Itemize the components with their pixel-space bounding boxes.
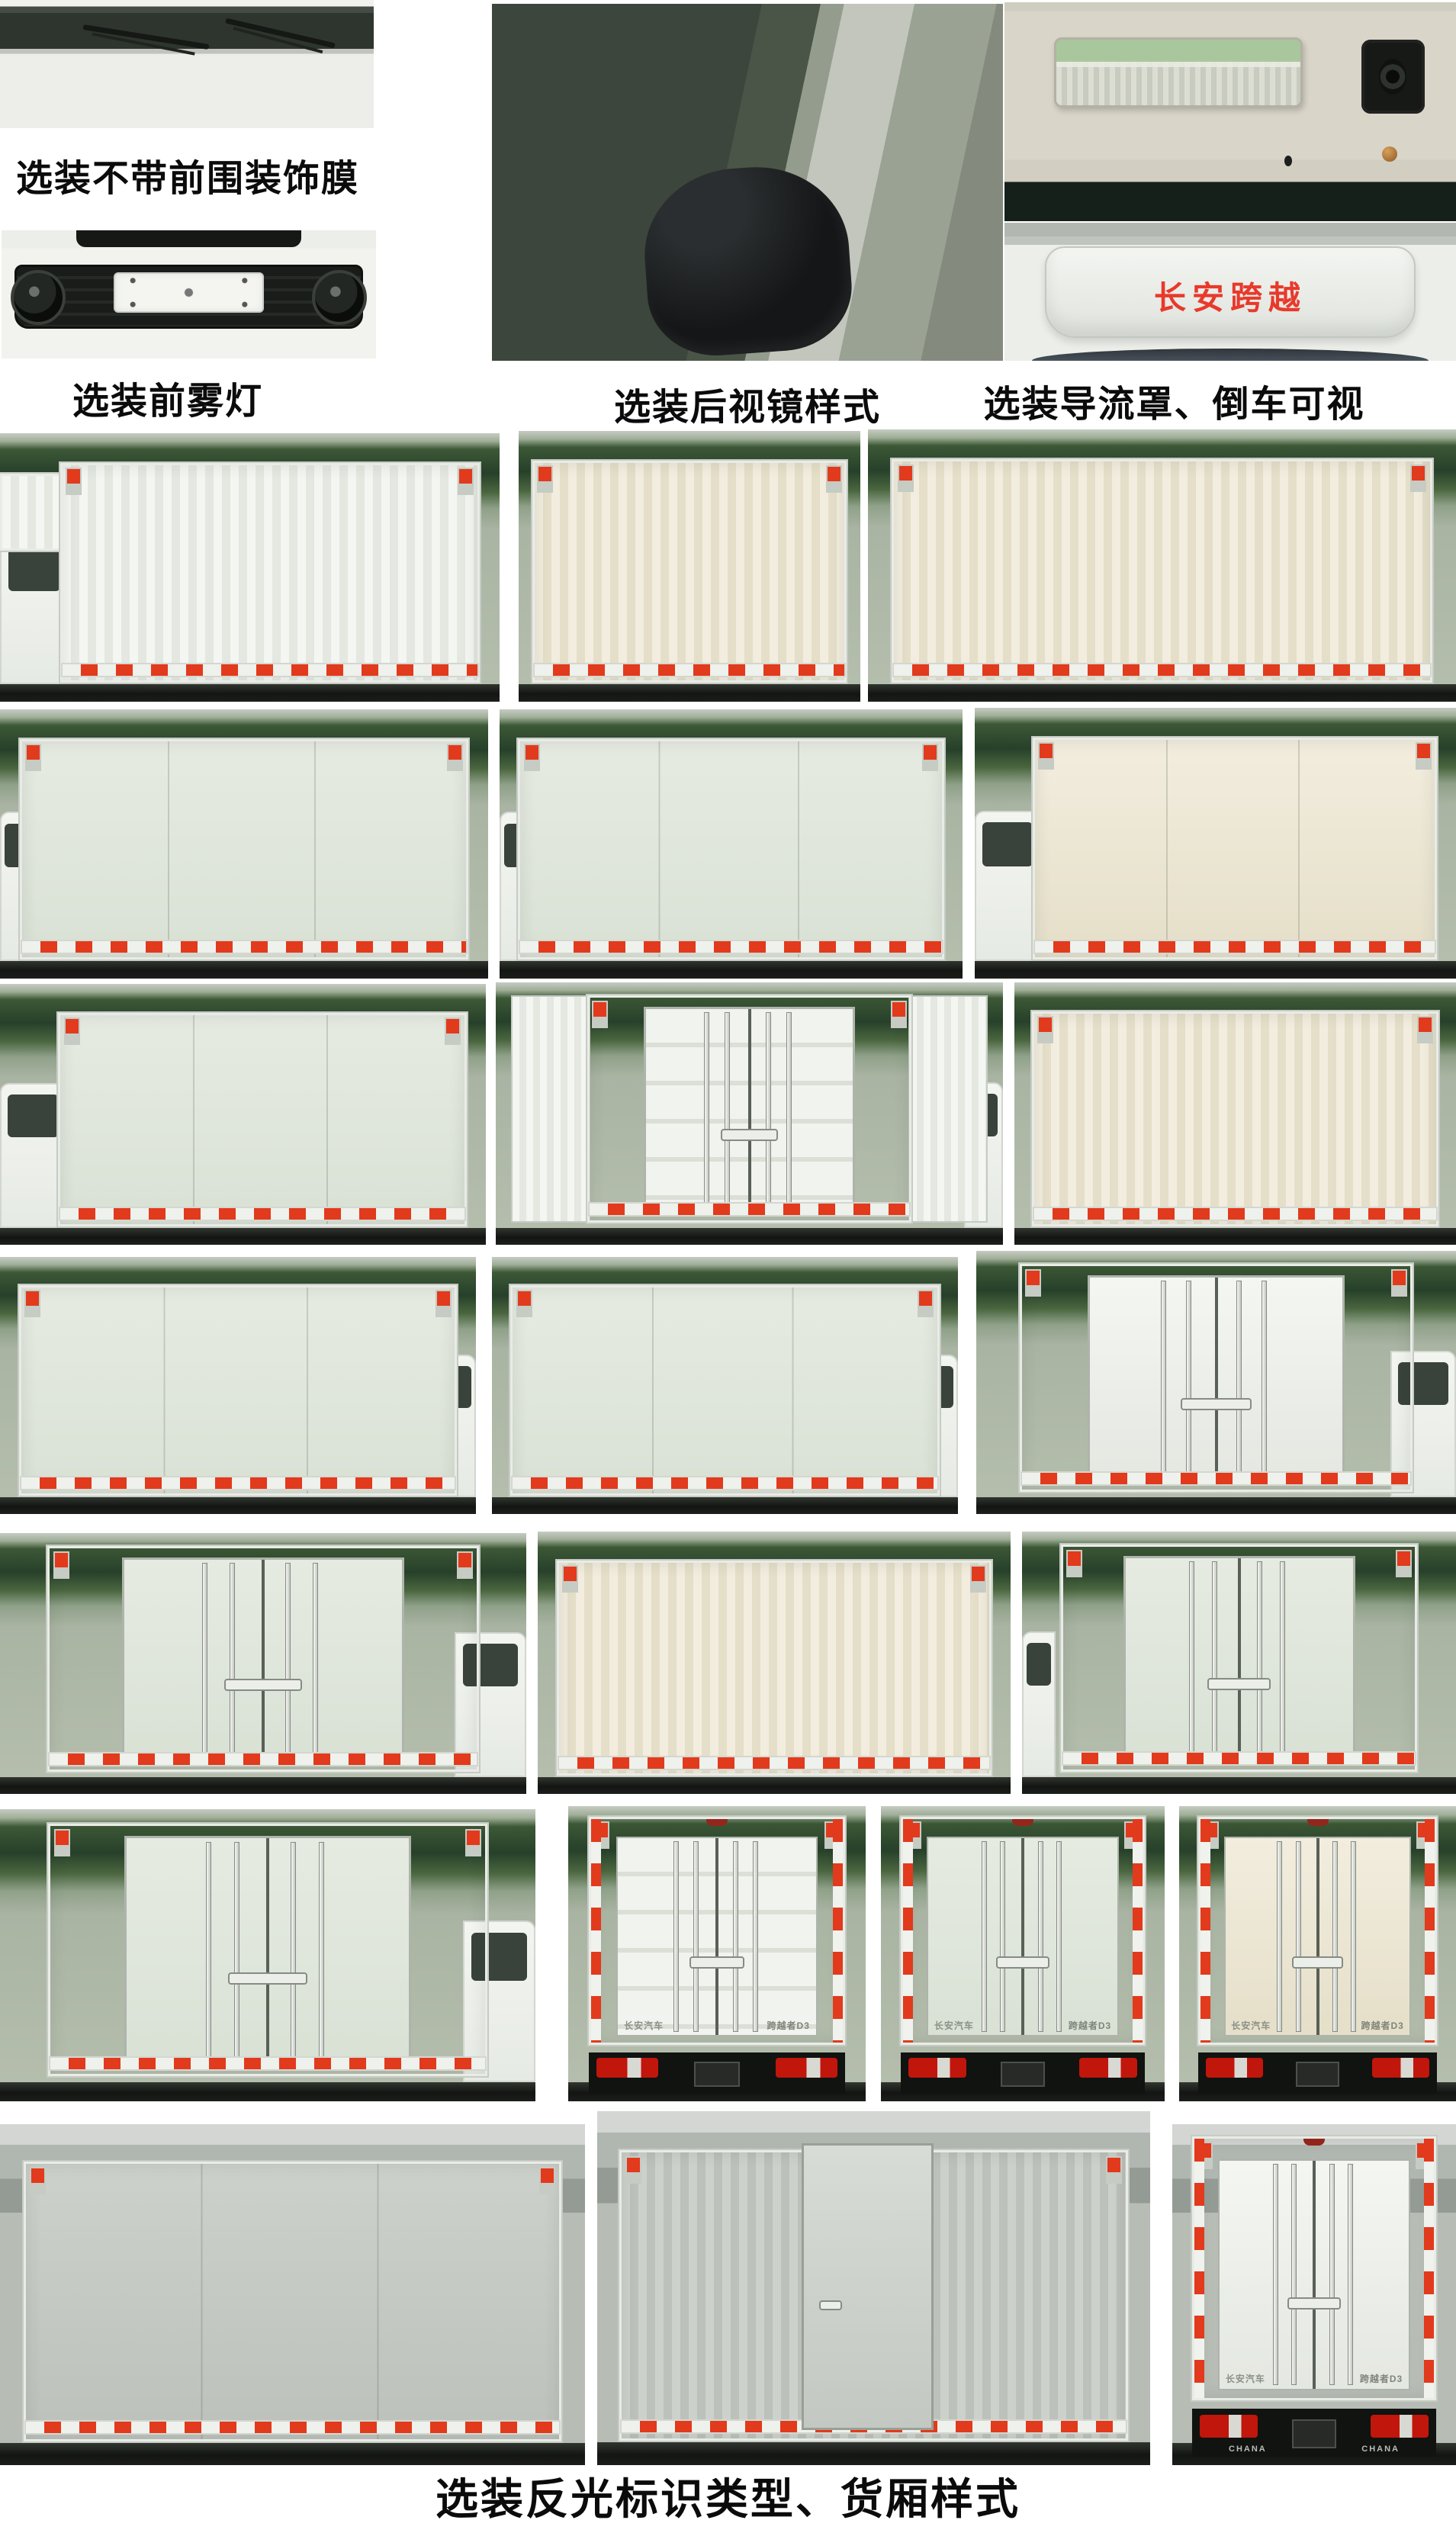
model-logo-text: 跨越者D3 [1069,2019,1111,2032]
taillight-left [1200,2415,1258,2438]
cargo-box [557,1561,992,1776]
photo-r7c3-rear-view-reflective-marking: 长安汽车 跨越者D3 CHANA CHANA [1172,2124,1456,2465]
rear-doors [927,1837,1118,2036]
truck-cab [975,811,1040,961]
cargo-box-rear: 长安汽车 跨越者D3 [1192,2136,1436,2400]
hood-intake [76,230,301,247]
reflective-edge-strip [1133,1819,1143,2043]
side-service-door [802,2143,934,2430]
door-lock-rod [285,1563,291,1756]
caption-deflector-rear-camera: 选装导流罩、倒车可视 [892,374,1456,427]
reflective-strip [21,940,468,954]
reflective-strip [588,1202,911,1217]
cargo-box [518,739,943,960]
door-lock-rod [753,1841,758,2032]
brand-logo-text: 长安汽车 [934,2019,974,2032]
cargo-box-rear [48,1824,487,2076]
reflective-strip [48,1752,478,1766]
photo-r3c1-box-side-smooth-cab-left [0,984,486,1245]
photo-side-mirror-style [492,4,1003,361]
door-lock-rod [1291,2164,1297,2385]
reflective-strip [49,2056,487,2071]
cargo-box [19,1285,457,1496]
taillight-right [1079,2058,1138,2078]
door-lock-rod [1262,1281,1267,1475]
taillight-left [1206,2058,1263,2078]
bumper-brand-text: CHANA [1229,2445,1267,2454]
door-lock-rod [313,1563,318,1756]
brand-logo-text: 长安汽车 [1226,2372,1265,2385]
door-lock-rod [1189,1561,1194,1755]
door-lock-rod [1273,2164,1278,2385]
reflective-strip [1033,1207,1438,1221]
reversing-camera [1361,40,1425,114]
roof-deflector: 长安跨越 [1045,246,1415,338]
rear-doors [1088,1275,1344,1480]
photo-r6c4-rear-view-reflective-marking: 长安汽车 跨越者D3 [1179,1806,1456,2101]
plate-recess [694,2062,740,2087]
door-lock-rod [1329,2164,1335,2385]
door-lock-rod [291,1842,296,2059]
panel-hole [1284,156,1292,166]
clearance-lamp [1054,37,1303,108]
door-lock-rod [1212,1561,1217,1755]
door-lock-rod [1161,1281,1166,1475]
photo-r5c3-box-rear-doors [1022,1532,1456,1794]
door-lock-rod [1280,1561,1285,1755]
top-marker-lamp [1303,2139,1325,2146]
door-lock-rod [202,1563,207,1756]
truck-cab [0,535,68,684]
plate-recess [1292,2419,1336,2448]
cargo-box [1033,738,1437,960]
rear-doors [124,1836,411,2064]
photo-r4c3-box-rear-doors-cab-right [976,1251,1456,1514]
door-lock-rod [786,1012,792,1206]
cargo-box-rear: 长安汽车 跨越者D3 [589,1817,844,2046]
box-side-wall [511,995,590,1223]
top-marker-lamp [706,1819,728,1826]
door-lock-rod [1332,1841,1338,2032]
photo-r5c2-box-side-corrugated [538,1532,1011,1794]
taillight-right [1372,2058,1429,2078]
reflective-edge-strip [1200,1819,1210,2043]
door-lock-rod [704,1012,709,1206]
door-lock-rod [206,1842,211,2059]
photo-r6c1-box-rear-doors-cab-right [0,1809,535,2101]
photo-r7c1-box-side-smooth-silver [0,2124,585,2465]
reflective-strip [558,1756,991,1770]
door-lock-rod [230,1563,235,1756]
photo-cab-rear-lamp-camera [1004,2,1456,221]
door-lock-rod [1056,1841,1062,2032]
cargo-box-rear [587,995,912,1223]
rear-doors [1123,1556,1355,1760]
cargo-box-rear [1061,1545,1417,1772]
photo-r2c2-box-side-smooth [500,709,963,979]
photo-r1c3-box-side-corrugated [868,429,1456,702]
cargo-box [892,459,1432,683]
cargo-box [60,463,480,683]
reflective-strip [533,663,846,677]
photo-front-bumper-fog-lamps [2,230,376,358]
rear-doors [1224,1837,1411,2036]
reflective-edge-strip [903,1819,913,2043]
brand-logo-text: 长安汽车 [624,2019,664,2032]
truck-cab [1022,1631,1056,1777]
door-lock-rod [1348,2164,1353,2385]
door-lock-rod [1000,1841,1005,2032]
wiper-blade-right [225,18,336,49]
rear-doors [122,1557,404,1761]
cargo-box [532,461,847,683]
photo-r7c2-box-corrugated-side-door [597,2111,1150,2465]
door-lock-rod [982,1841,987,2032]
rear-bumper [901,2052,1145,2094]
photo-r5c1-box-rear-doors-cab-right [0,1533,526,1794]
brand-logo-text: 长安汽车 [1231,2019,1271,2032]
photo-r3c2-box-rear-doors-corrugated [496,982,1003,1245]
reflective-strip [20,1476,456,1490]
door-lock-rod [1236,1281,1242,1475]
door-lock-rod [673,1841,679,2032]
taillight-left [908,2058,967,2078]
photo-windshield-wipers [0,0,374,128]
deflector-logo-text: 长安跨越 [1046,272,1413,319]
taillight-right [1371,2415,1429,2438]
cargo-box [58,1013,466,1226]
reflective-strip [24,2420,561,2435]
photo-r6c2-rear-view-reflective-marking: 长安汽车 跨越者D3 [568,1806,866,2101]
truck-cab [0,1083,66,1228]
taillight-left [596,2058,657,2078]
door-lock-rod [725,1012,730,1206]
model-logo-text: 跨越者D3 [767,2019,810,2032]
cargo-box-rear: 长安汽车 跨越者D3 [901,1817,1145,2046]
cargo-box-rear [47,1546,479,1772]
rear-doors [644,1007,855,1211]
rear-bumper [589,2052,844,2094]
door-lock-rod [1038,1841,1043,2032]
photo-r4c2-box-side-smooth [492,1257,958,1514]
reflective-edge-strip [1424,2139,1434,2398]
reflective-strip [61,663,479,677]
door-lock-rod [1296,1841,1301,2032]
top-marker-lamp [1307,1819,1329,1826]
door-lock-rod [234,1842,239,2059]
vehicle-option-photo-sheet: 选装不带前围装饰膜 选装前雾灯 选装后视镜样式 长安跨越 选装导流罩、倒车可视 [0,0,1456,2533]
model-logo-text: 跨越者D3 [1360,2372,1403,2385]
reflective-strip [1033,940,1436,954]
photo-r1c1-box-side-corrugated-cab-left [0,433,500,702]
door-lock-rod [693,1841,699,2032]
model-logo-text: 跨越者D3 [1361,2019,1403,2032]
door-lock-rod [1277,1841,1282,2032]
cargo-box [510,1285,939,1496]
bolt [1382,146,1397,162]
cargo-box-rear [1020,1264,1413,1491]
bumper-brand-text: CHANA [1361,2445,1400,2454]
door-lock-rod [766,1012,771,1206]
photo-r2c1-box-side-smooth [0,709,488,979]
reflective-edge-strip [591,1819,601,2043]
plate-recess [1001,2062,1045,2087]
reflective-edge-strip [1425,1819,1435,2043]
photo-roof-deflector: 长安跨越 [1004,223,1456,361]
reflective-strip [1020,1471,1413,1486]
wiper-blade-left [82,24,209,50]
caption-front-fog-lamps: 选装前雾灯 [0,371,336,424]
taillight-right [776,2058,837,2078]
license-plate-blank [114,272,263,313]
reflective-strip [519,940,943,954]
photo-r3c3-box-side-corrugated [1014,982,1456,1245]
fog-lamp-right [312,270,367,325]
reflective-edge-strip [833,1819,843,2043]
photo-r4c1-box-side-smooth [0,1257,476,1514]
rear-doors [616,1837,818,2036]
caption-no-front-trim-film: 选装不带前围装饰膜 [0,148,375,201]
door-lock-rod [1257,1561,1262,1755]
door-lock-rod [1186,1281,1191,1475]
door-lock-rod [1351,1841,1356,2032]
photo-r1c2-box-side-corrugated [519,431,860,702]
plate-recess [1296,2062,1339,2087]
cargo-box [24,2162,562,2441]
photo-r6c3-rear-view-reflective-marking: 长安汽车 跨越者D3 [881,1806,1165,2101]
side-mirror [639,161,856,360]
cargo-box [1032,1011,1438,1226]
fog-lamp-left [11,270,66,325]
cargo-box-rear: 长安汽车 跨越者D3 [1198,1817,1436,2046]
rear-bumper: CHANA CHANA [1192,2409,1436,2457]
caption-reflective-marking-cargo-style: 选装反光标识类型、货厢样式 [0,2465,1456,2527]
cargo-box [20,739,469,960]
rear-doors [1218,2159,1409,2390]
door-lock-rod [733,1841,738,2032]
reflective-strip [59,1207,465,1221]
top-marker-lamp [1012,1819,1033,1826]
box-side-wall [908,995,988,1223]
rear-bumper [1198,2052,1436,2094]
reflective-strip [511,1476,938,1490]
reflective-strip [892,663,1432,677]
reflective-strip [1062,1751,1416,1766]
photo-r2c3-box-side-smooth-cab-left [975,708,1456,979]
door-lock-rod [319,1842,324,2059]
reflective-edge-strip [1194,2139,1204,2398]
